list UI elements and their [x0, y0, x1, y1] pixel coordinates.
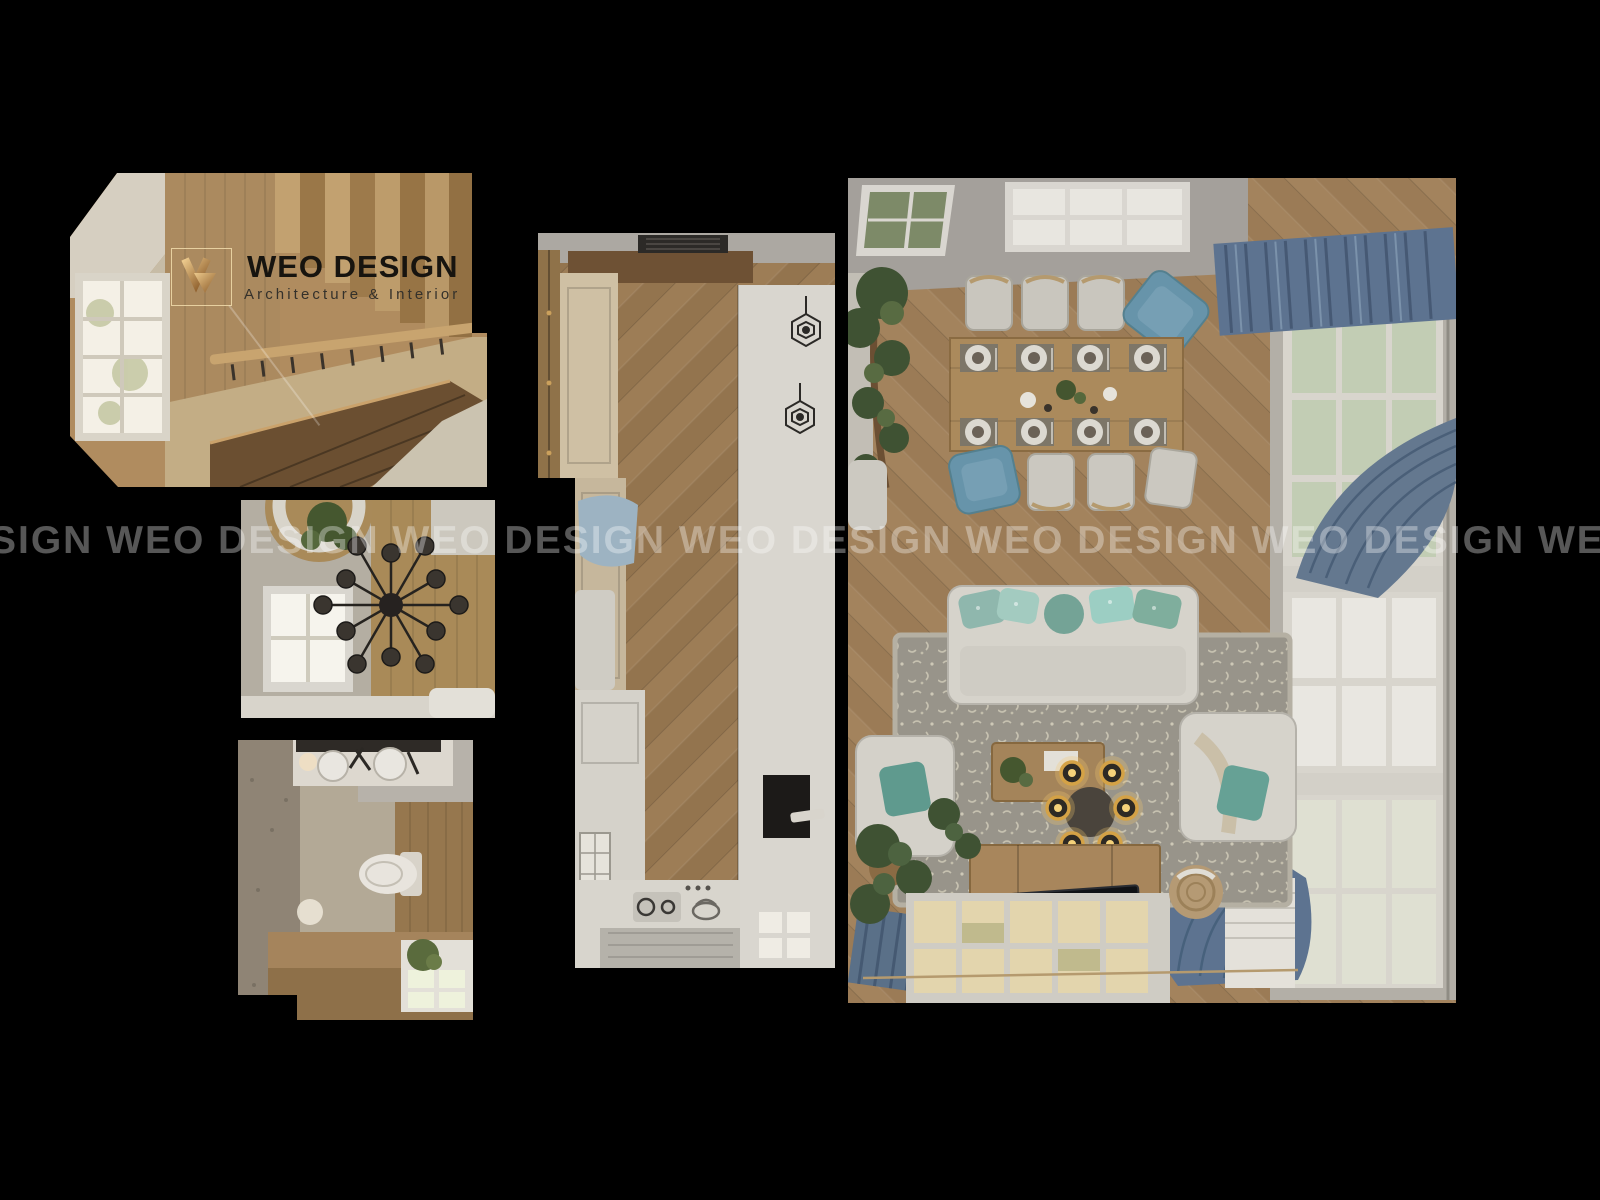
render-living-dining — [848, 178, 1456, 1003]
round-basket — [1169, 865, 1223, 919]
living-dining-illustration — [848, 178, 1456, 1003]
right-wall — [738, 285, 835, 968]
window — [263, 586, 353, 692]
dining-chairs-bottom — [1028, 447, 1198, 510]
logo-frame — [171, 248, 232, 306]
vent — [638, 235, 728, 253]
brand-logo: WEO DESIGN Architecture & Interior — [70, 173, 487, 487]
window — [753, 906, 815, 964]
render-bathroom — [238, 740, 473, 1020]
logo-diagonal-line — [229, 305, 320, 426]
sofa — [948, 585, 1198, 704]
side-table — [848, 460, 887, 530]
brand-tagline: Architecture & Interior — [244, 286, 460, 303]
kitchen-illustration — [538, 233, 835, 968]
window — [401, 939, 473, 1012]
render-kitchen-hall — [538, 233, 835, 968]
watermark-text: SIGN WEO DESIGN WEO DESIGN WEO DESIGN WE… — [0, 521, 1600, 560]
bathroom-illustration — [238, 740, 473, 1020]
armchair-right — [1180, 713, 1296, 841]
vanity — [293, 740, 453, 786]
kitchen-counter — [575, 880, 740, 968]
blue-armchair-bottom — [947, 444, 1022, 516]
left-wall-strip — [538, 250, 560, 478]
dining-chairs-top — [966, 276, 1124, 330]
brand-name: WEO DESIGN — [247, 249, 459, 285]
presentation-board: WEO DESIGN Architecture & Interior — [0, 0, 1600, 1200]
render-staircase: WEO DESIGN Architecture & Interior — [70, 173, 487, 487]
weo-logo-mark-icon — [172, 249, 230, 304]
pillar — [575, 590, 615, 690]
